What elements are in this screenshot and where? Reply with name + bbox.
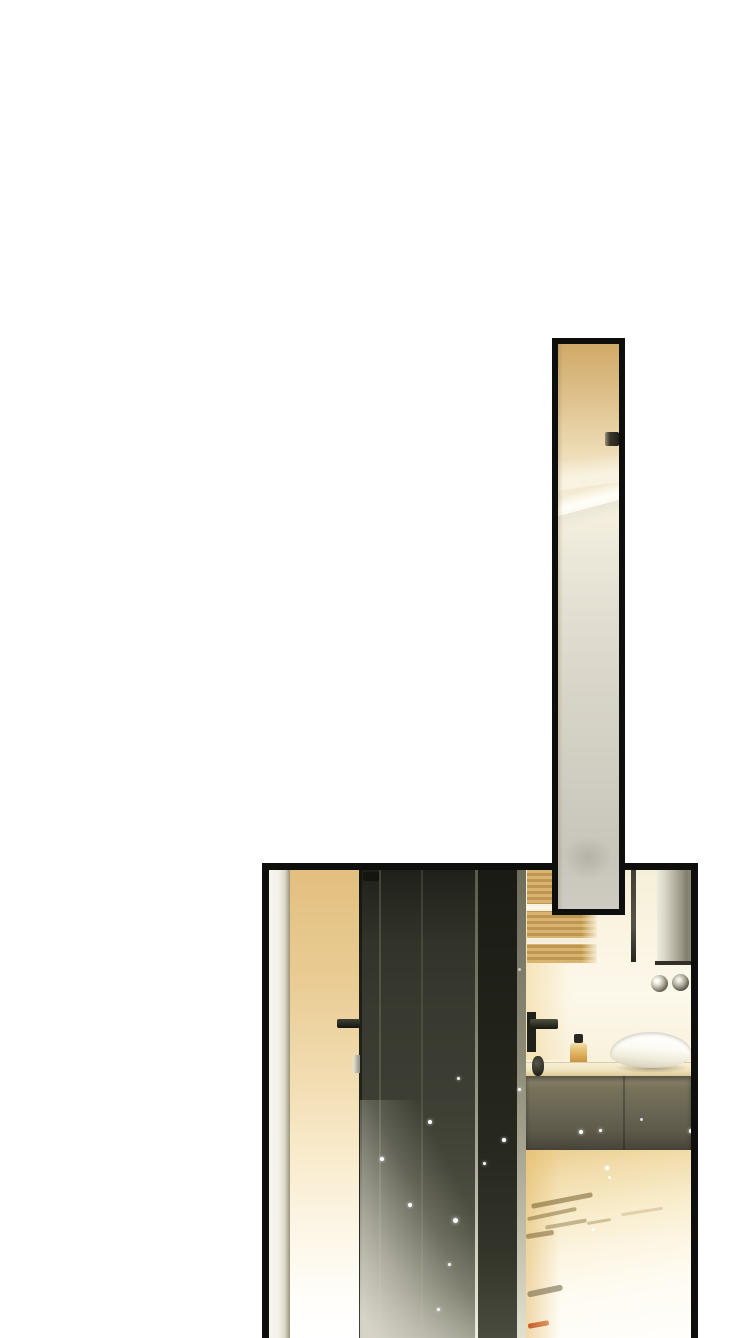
sparkle-dot [502, 1138, 506, 1142]
door-top-hinge [363, 872, 379, 881]
door-handle-right [530, 1019, 558, 1029]
sliver-left-edge-shade [558, 344, 563, 909]
sparkle-dot [518, 1088, 521, 1091]
sparkle-dot [380, 1157, 384, 1161]
mirror-edge-line [631, 870, 636, 962]
sparkle-dot [592, 1228, 595, 1231]
door-edge-highlight [517, 870, 526, 1338]
sparkle-dot [579, 1130, 583, 1134]
sparkle-dot [428, 1120, 432, 1124]
sparkle-dot [437, 1308, 440, 1311]
sparkle-dot [605, 1166, 609, 1170]
sparkle-dot [689, 1129, 693, 1133]
cabinet-seam [623, 1076, 625, 1150]
faucet-knob-right [672, 974, 689, 991]
comic-page [0, 0, 755, 1338]
door-frame-strip [269, 870, 290, 1338]
sparkle-dot [518, 968, 521, 971]
cabinet [526, 1076, 691, 1150]
mirror-bottom-edge [655, 961, 691, 965]
sparkle-dot [457, 1077, 460, 1080]
sparkle-dot [453, 1218, 458, 1223]
door-handle-left [337, 1019, 360, 1028]
sparkle-dot [448, 1263, 451, 1266]
door-knob-right [532, 1056, 544, 1076]
door-glow [360, 1100, 476, 1338]
floor-warm-left [526, 1150, 560, 1338]
sparkle-dot [608, 1176, 611, 1179]
sparkle-dot [483, 1162, 486, 1165]
reflection-lower-smudge [564, 836, 612, 880]
soap-bottle-cap [574, 1034, 583, 1043]
sparkle-dot [640, 1118, 643, 1121]
sparkle-dot [408, 1203, 412, 1207]
panel-bathroom-scene [262, 863, 698, 1338]
door-dark-strip [478, 870, 517, 1338]
warm-wall [290, 870, 359, 1338]
sink-bowl [610, 1032, 692, 1068]
sparkle-dot [599, 1129, 602, 1132]
door-handle-plate-right [527, 1012, 536, 1052]
door-strike-plate [353, 1055, 360, 1073]
faucet-knob-left [651, 975, 668, 992]
mirror-column [657, 870, 691, 965]
panel-mirror-sliver [552, 338, 625, 915]
sliver-door-handle [605, 432, 619, 446]
